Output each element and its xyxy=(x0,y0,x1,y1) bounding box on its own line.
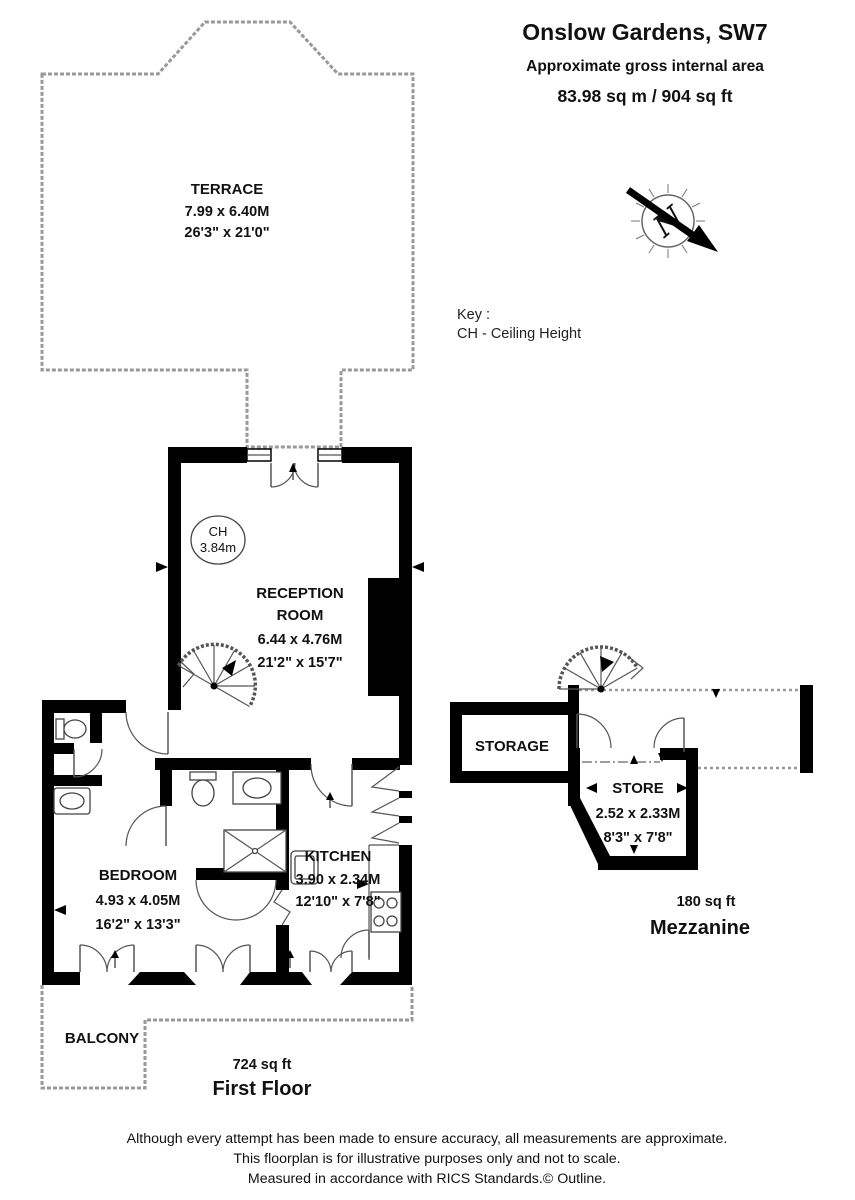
terrace-label: TERRACE xyxy=(191,181,264,198)
store-dim-metric: 2.52 x 2.33M xyxy=(596,806,681,822)
door-swing xyxy=(107,945,134,972)
door-swing xyxy=(577,714,611,748)
reception-dim-metric: 6.44 x 4.76M xyxy=(258,632,343,648)
wall xyxy=(42,700,126,713)
door-swing xyxy=(196,945,223,972)
kitchen-louvre-windows xyxy=(372,767,399,843)
wall xyxy=(352,758,400,770)
wall xyxy=(289,758,311,770)
key-item-ch: CH - Ceiling Height xyxy=(457,326,581,342)
toilet-cistern-icon xyxy=(56,719,64,739)
storage-label: STORAGE xyxy=(475,738,549,755)
wall xyxy=(160,770,172,806)
kitchen-dim-imperial: 12'10" x 7'8" xyxy=(295,894,380,910)
door-swing xyxy=(310,951,331,972)
page-subtitle: Approximate gross internal area xyxy=(526,58,764,75)
dimension-arrow xyxy=(630,845,638,854)
disclaimer-line-2: This floorplan is for illustrative purpo… xyxy=(233,1151,620,1167)
first-floor-name: First Floor xyxy=(213,1078,312,1100)
toilet-icon xyxy=(192,780,214,806)
chimney-breast xyxy=(368,578,412,696)
balcony-label: BALCONY xyxy=(65,1030,139,1047)
dimension-arrow xyxy=(289,463,297,472)
dimension-arrow xyxy=(156,562,168,572)
wall xyxy=(155,758,289,770)
ch-label: CH xyxy=(209,524,228,539)
stair-outer-arc xyxy=(179,644,256,706)
wall xyxy=(54,743,74,754)
door-swing xyxy=(341,930,369,958)
kitchen-dim-metric: 3.90 x 2.34M xyxy=(296,872,381,888)
door-swing xyxy=(271,463,295,487)
basin-icon xyxy=(243,778,271,798)
wall xyxy=(800,685,813,773)
stair-outer-arc xyxy=(559,647,637,689)
bedroom-label: BEDROOM xyxy=(99,867,177,884)
mezzanine-area: 180 sq ft xyxy=(677,894,736,910)
basin-icon xyxy=(60,793,84,809)
door-swing xyxy=(80,945,107,972)
door-swing xyxy=(223,945,250,972)
wall-pier xyxy=(240,972,312,985)
ch-value: 3.84m xyxy=(200,540,236,555)
stair-tread xyxy=(214,686,250,707)
dimension-arrow xyxy=(630,755,638,764)
wall xyxy=(399,816,412,823)
dimension-arrow xyxy=(412,562,424,572)
page-title: Onslow Gardens, SW7 xyxy=(522,19,767,45)
wardrobe-door-swing xyxy=(236,880,276,920)
entrance-windows xyxy=(247,449,342,461)
floorplan-canvas: CH 3.84m N Onslow Gardens, SW7 Approxima… xyxy=(0,0,855,1200)
wall xyxy=(598,856,698,870)
shower-drain-icon xyxy=(253,849,258,854)
louvre-window xyxy=(372,823,399,843)
kitchen-label: KITCHEN xyxy=(305,848,372,865)
dimension-arrow xyxy=(326,792,334,800)
hob-burner-icon xyxy=(374,916,384,926)
toilet-cistern-icon xyxy=(190,772,216,780)
louvre-window xyxy=(372,767,399,791)
door-swing xyxy=(294,463,318,487)
key-heading: Key : xyxy=(457,307,490,323)
reception-label-2: ROOM xyxy=(277,607,324,624)
wall xyxy=(42,700,54,985)
total-area: 83.98 sq m / 904 sq ft xyxy=(557,86,732,106)
door-swing xyxy=(654,718,684,748)
stair-direction-arrow xyxy=(222,660,236,676)
floorplan-page: CH 3.84m N Onslow Gardens, SW7 Approxima… xyxy=(0,0,855,1200)
hob-burner-icon xyxy=(387,916,397,926)
wall xyxy=(168,447,181,710)
terrace-dim-imperial: 26'3" x 21'0" xyxy=(184,225,269,241)
wall xyxy=(90,713,102,743)
wall-pier xyxy=(128,972,196,985)
hob-burner-icon xyxy=(387,898,397,908)
reception-dim-imperial: 21'2" x 15'7" xyxy=(257,655,342,671)
wall xyxy=(686,748,698,870)
louvre-window xyxy=(372,798,399,816)
wall-pier xyxy=(340,972,412,985)
store-label: STORE xyxy=(612,780,663,797)
wall xyxy=(660,748,698,760)
wall xyxy=(399,791,412,798)
bedroom-dim-imperial: 16'2" x 13'3" xyxy=(95,917,180,933)
ceiling-height-badge: CH 3.84m xyxy=(191,516,245,564)
wall xyxy=(450,702,573,715)
compass-icon: N xyxy=(628,184,718,258)
wall xyxy=(450,771,573,783)
dimension-arrow xyxy=(712,689,720,698)
toilet-icon xyxy=(64,720,86,738)
spiral-stair-icon xyxy=(179,644,256,706)
wardrobe-door-swing xyxy=(196,880,236,920)
wall xyxy=(42,972,80,985)
stair-newel xyxy=(598,686,605,693)
dimension-arrow xyxy=(111,950,119,958)
bedroom-dim-metric: 4.93 x 4.05M xyxy=(96,893,181,909)
wall xyxy=(276,925,289,972)
disclaimer-line-1: Although every attempt has been made to … xyxy=(127,1131,728,1147)
wall-break-line xyxy=(274,890,290,925)
mezzanine-name: Mezzanine xyxy=(650,917,750,939)
dimension-arrow xyxy=(586,783,597,793)
stair-newel xyxy=(211,683,218,690)
wall xyxy=(42,775,102,786)
reception-label-1: RECEPTION xyxy=(256,585,344,602)
door-swing xyxy=(126,712,168,754)
first-floor-area: 724 sq ft xyxy=(233,1057,292,1073)
terrace-dim-metric: 7.99 x 6.40M xyxy=(185,204,270,220)
store-dim-imperial: 8'3" x 7'8" xyxy=(603,830,672,846)
door-swing xyxy=(74,749,102,777)
wall xyxy=(450,702,462,783)
dimension-arrow xyxy=(54,905,66,915)
door-swing xyxy=(126,806,166,846)
wall xyxy=(568,748,580,806)
disclaimer-line-3: Measured in accordance with RICS Standar… xyxy=(248,1171,606,1187)
stair-break xyxy=(181,662,194,687)
